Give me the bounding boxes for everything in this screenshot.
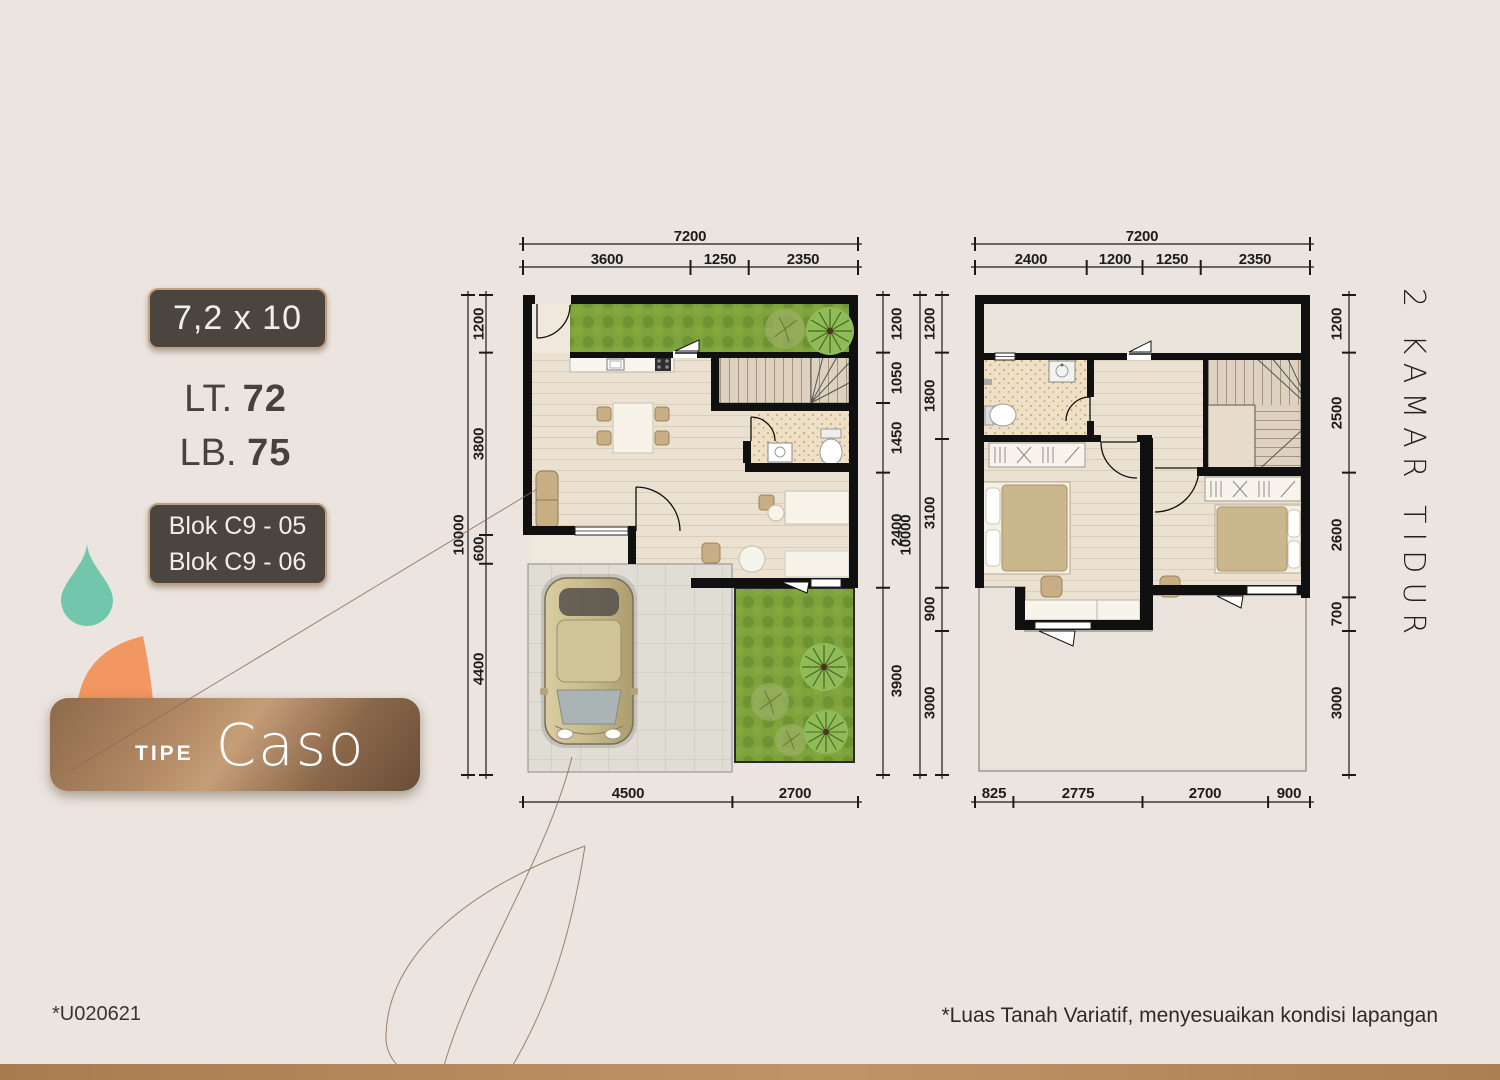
block-badge: Blok C9 - 05 Blok C9 - 06 xyxy=(148,503,327,585)
shower-valve-icon xyxy=(984,379,992,385)
footer-disclaimer: *Luas Tanah Variatif, menyesuaikan kondi… xyxy=(941,1004,1438,1028)
toilet-icon xyxy=(820,429,842,465)
dim-label: 1200 xyxy=(922,308,939,341)
dim-label: 2350 xyxy=(1239,251,1272,268)
land-area-label: LT. xyxy=(184,378,232,420)
size-badge-label: 7,2 x 10 xyxy=(173,299,302,338)
dim-label: 1250 xyxy=(1156,251,1189,268)
dim-label: 2775 xyxy=(1062,785,1095,802)
dim-label: 900 xyxy=(922,597,939,621)
tree-icon xyxy=(751,683,789,721)
dim-total-height: 10000 xyxy=(898,515,915,556)
dim-label: 900 xyxy=(1277,785,1301,802)
upper-floor-plan xyxy=(975,295,1310,775)
palm-tree-icon xyxy=(800,643,848,691)
dim-label: 2400 xyxy=(1015,251,1048,268)
type-value: Caso xyxy=(216,711,366,779)
dim-label: 825 xyxy=(982,785,1006,802)
bedroom-count-label: 2 KAMAR TIDUR xyxy=(1396,288,1431,643)
dim-label: 1800 xyxy=(922,380,939,413)
bed-icon xyxy=(1215,505,1301,573)
building-area-label: LB. xyxy=(180,432,237,474)
tree-icon xyxy=(775,724,807,756)
teal-drop-icon xyxy=(60,542,114,626)
dim-label: 2700 xyxy=(1189,785,1222,802)
dim-label: 3600 xyxy=(591,251,624,268)
bottom-accent-bar xyxy=(0,1064,1500,1080)
sofa-icon xyxy=(536,471,558,528)
stairs xyxy=(1208,357,1301,405)
building-area-value: 75 xyxy=(247,432,291,474)
dim-total-width: 7200 xyxy=(674,228,707,245)
dim-label: 3100 xyxy=(922,497,939,530)
dim-label: 1050 xyxy=(889,362,906,395)
washbasin-icon xyxy=(1049,361,1075,382)
type-banner: TIPE Caso xyxy=(50,698,420,791)
dim-label: 3900 xyxy=(889,665,906,698)
work-desk-icon xyxy=(759,491,849,524)
dim-label: 600 xyxy=(471,537,488,561)
entry-porch xyxy=(532,535,628,564)
dim-label: 2600 xyxy=(1329,519,1346,552)
palm-tree-icon xyxy=(806,307,854,355)
dim-label: 3800 xyxy=(471,428,488,461)
dim-label: 1450 xyxy=(889,422,906,455)
dim-label: 1200 xyxy=(471,308,488,341)
dim-label: 1200 xyxy=(1099,251,1132,268)
type-label: TIPE xyxy=(135,742,194,766)
stool-icon xyxy=(1041,576,1062,597)
dim-label: 2500 xyxy=(1329,397,1346,430)
block-line-1: Blok C9 - 05 xyxy=(169,508,307,544)
land-area-value: 72 xyxy=(243,378,287,420)
dim-label: 3000 xyxy=(1329,687,1346,720)
stairs xyxy=(719,357,849,403)
footer-code: *U020621 xyxy=(52,1003,141,1026)
ground-floor-plan xyxy=(523,295,858,775)
size-badge: 7,2 x 10 xyxy=(148,288,327,349)
washbasin-icon xyxy=(768,443,792,462)
toilet-icon xyxy=(985,404,1016,426)
dim-label: 4400 xyxy=(471,653,488,686)
car-icon xyxy=(540,574,638,748)
palm-tree-icon xyxy=(804,710,848,754)
land-area-line: LT. 72 xyxy=(148,378,323,421)
dim-total-width: 7200 xyxy=(1126,228,1159,245)
flyer-page: 7,2 x 10 LT. 72 LB. 75 Blok C9 - 05 Blok… xyxy=(0,0,1500,1080)
building-area-line: LB. 75 xyxy=(148,432,323,475)
dim-label: 4500 xyxy=(612,785,645,802)
bed-icon xyxy=(983,482,1070,574)
dim-label: 3000 xyxy=(922,687,939,720)
block-line-2: Blok C9 - 06 xyxy=(169,544,307,580)
dim-label: 2350 xyxy=(787,251,820,268)
tree-icon xyxy=(765,309,805,349)
kitchen-counter-icon xyxy=(570,357,674,372)
dim-label: 1200 xyxy=(1329,308,1346,341)
dim-label: 2700 xyxy=(779,785,812,802)
dim-label: 1200 xyxy=(889,308,906,341)
desk-icon xyxy=(1020,600,1140,620)
dim-label: 700 xyxy=(1329,602,1346,626)
dim-total-height: 10000 xyxy=(451,515,468,556)
orange-petal-icon xyxy=(72,628,162,700)
dim-label: 1250 xyxy=(704,251,737,268)
